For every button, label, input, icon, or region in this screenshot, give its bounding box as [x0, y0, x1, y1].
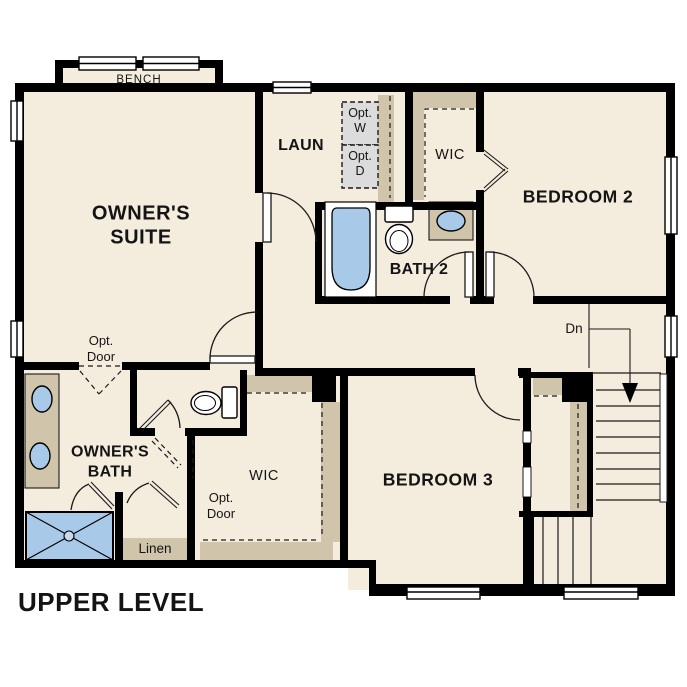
bench-window-left — [79, 57, 136, 70]
wic-upper-shelf-left — [412, 92, 424, 200]
stairs-down-label: Dn — [565, 321, 582, 337]
opt-door-owners-wic-label: Opt. Door — [207, 490, 235, 522]
opt-door-owners-bath-label: Opt. Door — [87, 333, 115, 365]
vanity-sink-1 — [32, 386, 52, 412]
bench-window-right — [143, 57, 199, 70]
page-title: UPPER LEVEL — [18, 587, 204, 619]
opt-dryer-label: Opt. D — [348, 149, 372, 180]
room-label-owners-wic: WIC — [249, 468, 279, 486]
laundry-window — [273, 82, 311, 93]
opt-door-2-line1: Opt. — [207, 490, 235, 506]
landing-window — [564, 587, 638, 599]
bench-label: BENCH — [116, 73, 161, 87]
room-label-owners-bath: OWNER'S BATH — [71, 442, 149, 481]
bedroom2-window — [665, 157, 677, 234]
room-label-wic-upper: WIC — [435, 147, 465, 165]
owners-wic-shelf-top — [245, 375, 312, 392]
room-label-laundry: LAUN — [278, 136, 324, 156]
vanity-sink-2 — [30, 443, 50, 469]
stair-hall-window — [665, 316, 677, 357]
opt-dryer-line2: D — [348, 164, 372, 179]
owners-suite-line1: OWNER'S — [92, 202, 190, 226]
opt-door-2-line2: Door — [207, 506, 235, 522]
opt-door-1-line2: Door — [87, 349, 115, 365]
bedroom3-window — [407, 587, 480, 599]
room-label-linen: Linen — [138, 541, 171, 557]
owners-suite-line2: SUITE — [92, 226, 190, 250]
shower-pan — [26, 512, 113, 560]
suite-window-lower — [11, 321, 23, 357]
owners-bath-line1: OWNER'S — [71, 442, 149, 462]
owners-wic-shelf-right — [321, 402, 340, 542]
bathtub — [332, 208, 370, 290]
bath2-toilet — [385, 206, 413, 254]
laundry-shelf-strip — [378, 95, 394, 202]
room-label-bath2: BATH 2 — [390, 260, 448, 280]
room-label-owners-suite: OWNER'S SUITE — [92, 202, 190, 251]
opt-dryer-line1: Opt. — [348, 149, 372, 164]
owners-wic-shelf-bottom — [200, 542, 333, 560]
suite-window-upper — [11, 101, 23, 141]
room-label-bedroom3: BEDROOM 3 — [383, 469, 493, 490]
opt-washer-line1: Opt. — [348, 106, 372, 121]
owners-bath-line2: BATH — [71, 462, 149, 482]
opt-washer-label: Opt. W — [348, 106, 372, 137]
stair-stringer — [660, 374, 667, 502]
opt-washer-line2: W — [348, 121, 372, 136]
bath2-sink — [437, 211, 465, 231]
room-label-bedroom2: BEDROOM 2 — [523, 186, 633, 207]
opt-door-1-line1: Opt. — [87, 333, 115, 349]
stair-closet-shelf — [533, 378, 562, 395]
floor-plan-canvas: BENCH OWNER'S SUITE LAUN Opt. W Opt. D W… — [0, 0, 687, 687]
